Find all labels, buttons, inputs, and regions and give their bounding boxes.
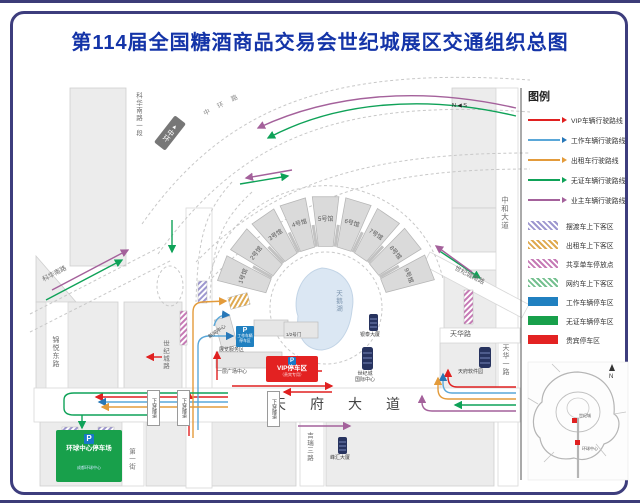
parking-icon: P xyxy=(84,434,94,444)
svg-text:世纪城: 世纪城 xyxy=(579,412,591,418)
compass-arrow-icon: ◀ xyxy=(458,103,462,109)
underpass-sign-2: 下穿隧道 xyxy=(177,390,190,426)
poi-fenghui: 峰汇大厦 xyxy=(330,456,350,462)
legend-area-bike: 共享单车停放点 xyxy=(528,254,634,273)
legend-route-unlicensed: 无证车辆行驶路线 xyxy=(528,170,634,190)
swatch-icon xyxy=(528,221,558,230)
arrow-icon xyxy=(562,197,567,203)
arrow-icon xyxy=(562,177,567,183)
svg-text:环球中心: 环球中心 xyxy=(582,445,598,451)
arrow-icon xyxy=(562,117,567,123)
poi-plaza-center: 一层广场中心 xyxy=(217,370,247,376)
poi-yintai: 银泰大厦 xyxy=(360,333,380,339)
road-label-shijicheng: 世纪城路 xyxy=(161,340,168,370)
poi-service-area: 展览服务区 xyxy=(219,348,244,354)
road-label-kehua-south-sec1: 科华南路一段 xyxy=(134,92,141,137)
parking-icon: P xyxy=(288,357,296,365)
route-line-icon xyxy=(528,179,560,181)
route-line-icon xyxy=(528,199,560,201)
fenghui-tower-icon xyxy=(338,437,347,454)
north-compass: N ◀ S xyxy=(452,104,467,110)
swatch-icon xyxy=(528,240,558,249)
swatch-icon xyxy=(528,335,558,344)
swatch-icon xyxy=(528,259,558,268)
parking-icon: P xyxy=(243,327,248,334)
route-line-icon xyxy=(528,119,560,121)
poi-software-park: 天府软件园 xyxy=(458,370,483,376)
vip-parking-box: P VIP停车区 （贵宾专用） xyxy=(266,356,318,382)
bike-zone-west xyxy=(180,311,187,345)
taxi-zone xyxy=(228,293,250,310)
inset-marker-global-center xyxy=(575,440,580,445)
traffic-map-poster: { "title": "第114届全国糖酒商品交易会世纪城展区交通组织总图", … xyxy=(0,0,640,503)
poi-gate12: 1/2号门 xyxy=(286,333,301,338)
swatch-icon xyxy=(528,278,558,287)
legend-area-shuttle: 摆渡车上下客区 xyxy=(528,216,634,235)
legend-panel: 图例 VIP车辆行驶路线 工作车辆行驶路线 出租车行驶路线 无证车辆行驶路线 业… xyxy=(528,88,634,349)
work-parking-box: P 工作车辆 停车区 xyxy=(236,326,254,347)
svg-text:5号馆: 5号馆 xyxy=(318,215,333,223)
svg-text:N: N xyxy=(609,374,613,380)
legend-area-vip-parking: 贵宾停车区 xyxy=(528,330,634,349)
yintai-tower-icon xyxy=(369,314,378,331)
intl-center-tower-icon xyxy=(362,347,373,370)
legend-area-taxi: 出租车上下客区 xyxy=(528,235,634,254)
legend-area-work-parking: 工作车辆停车区 xyxy=(528,292,634,311)
shuttle-zone xyxy=(198,281,207,303)
road-label-tianhua-first: 天华一路 xyxy=(502,344,509,376)
bike-zone-east xyxy=(464,290,473,324)
legend-route-owner: 业主车辆行驶路线 xyxy=(528,190,634,210)
legend-route-taxi: 出租车行驶路线 xyxy=(528,150,634,170)
legend-route-vip: VIP车辆行驶路线 xyxy=(528,110,634,130)
underpass-sign-1: 下穿隧道 xyxy=(147,390,160,426)
arrow-icon xyxy=(562,157,567,163)
road-label-jinyue-east: 锦悦东路 xyxy=(52,336,59,368)
poi-intl-center: 世纪城 国际中心 xyxy=(355,372,375,383)
legend-area-rideshare: 网约车上下客区 xyxy=(528,273,634,292)
road-label-tianhua: 天华路 xyxy=(450,331,471,338)
underpass-sign-3: 下穿隧道 xyxy=(267,391,280,427)
global-center-parking-box: P 环球中心停车场 成都环球中心 xyxy=(56,430,122,482)
arrow-icon xyxy=(562,137,567,143)
inset-marker-venue xyxy=(572,418,577,423)
legend-title: 图例 xyxy=(528,88,634,104)
legend-route-work: 工作车辆行驶路线 xyxy=(528,130,634,150)
swatch-icon xyxy=(528,297,558,306)
lake-label: 天鹅湖 xyxy=(334,290,341,313)
route-line-icon xyxy=(528,159,560,161)
route-line-icon xyxy=(528,139,560,141)
road-label-jirui-third: 吉瑞三路 xyxy=(305,432,312,462)
road-label-first-street: 第一街 xyxy=(127,448,134,471)
swatch-icon xyxy=(528,316,558,325)
legend-area-unlicensed-parking: 无证车辆停车区 xyxy=(528,311,634,330)
road-label-tianfu-avenue: 天府大道 xyxy=(272,397,424,411)
software-park-tower-icon xyxy=(479,347,491,368)
road-label-zhonghe-avenue: 中和大道 xyxy=(501,196,509,230)
